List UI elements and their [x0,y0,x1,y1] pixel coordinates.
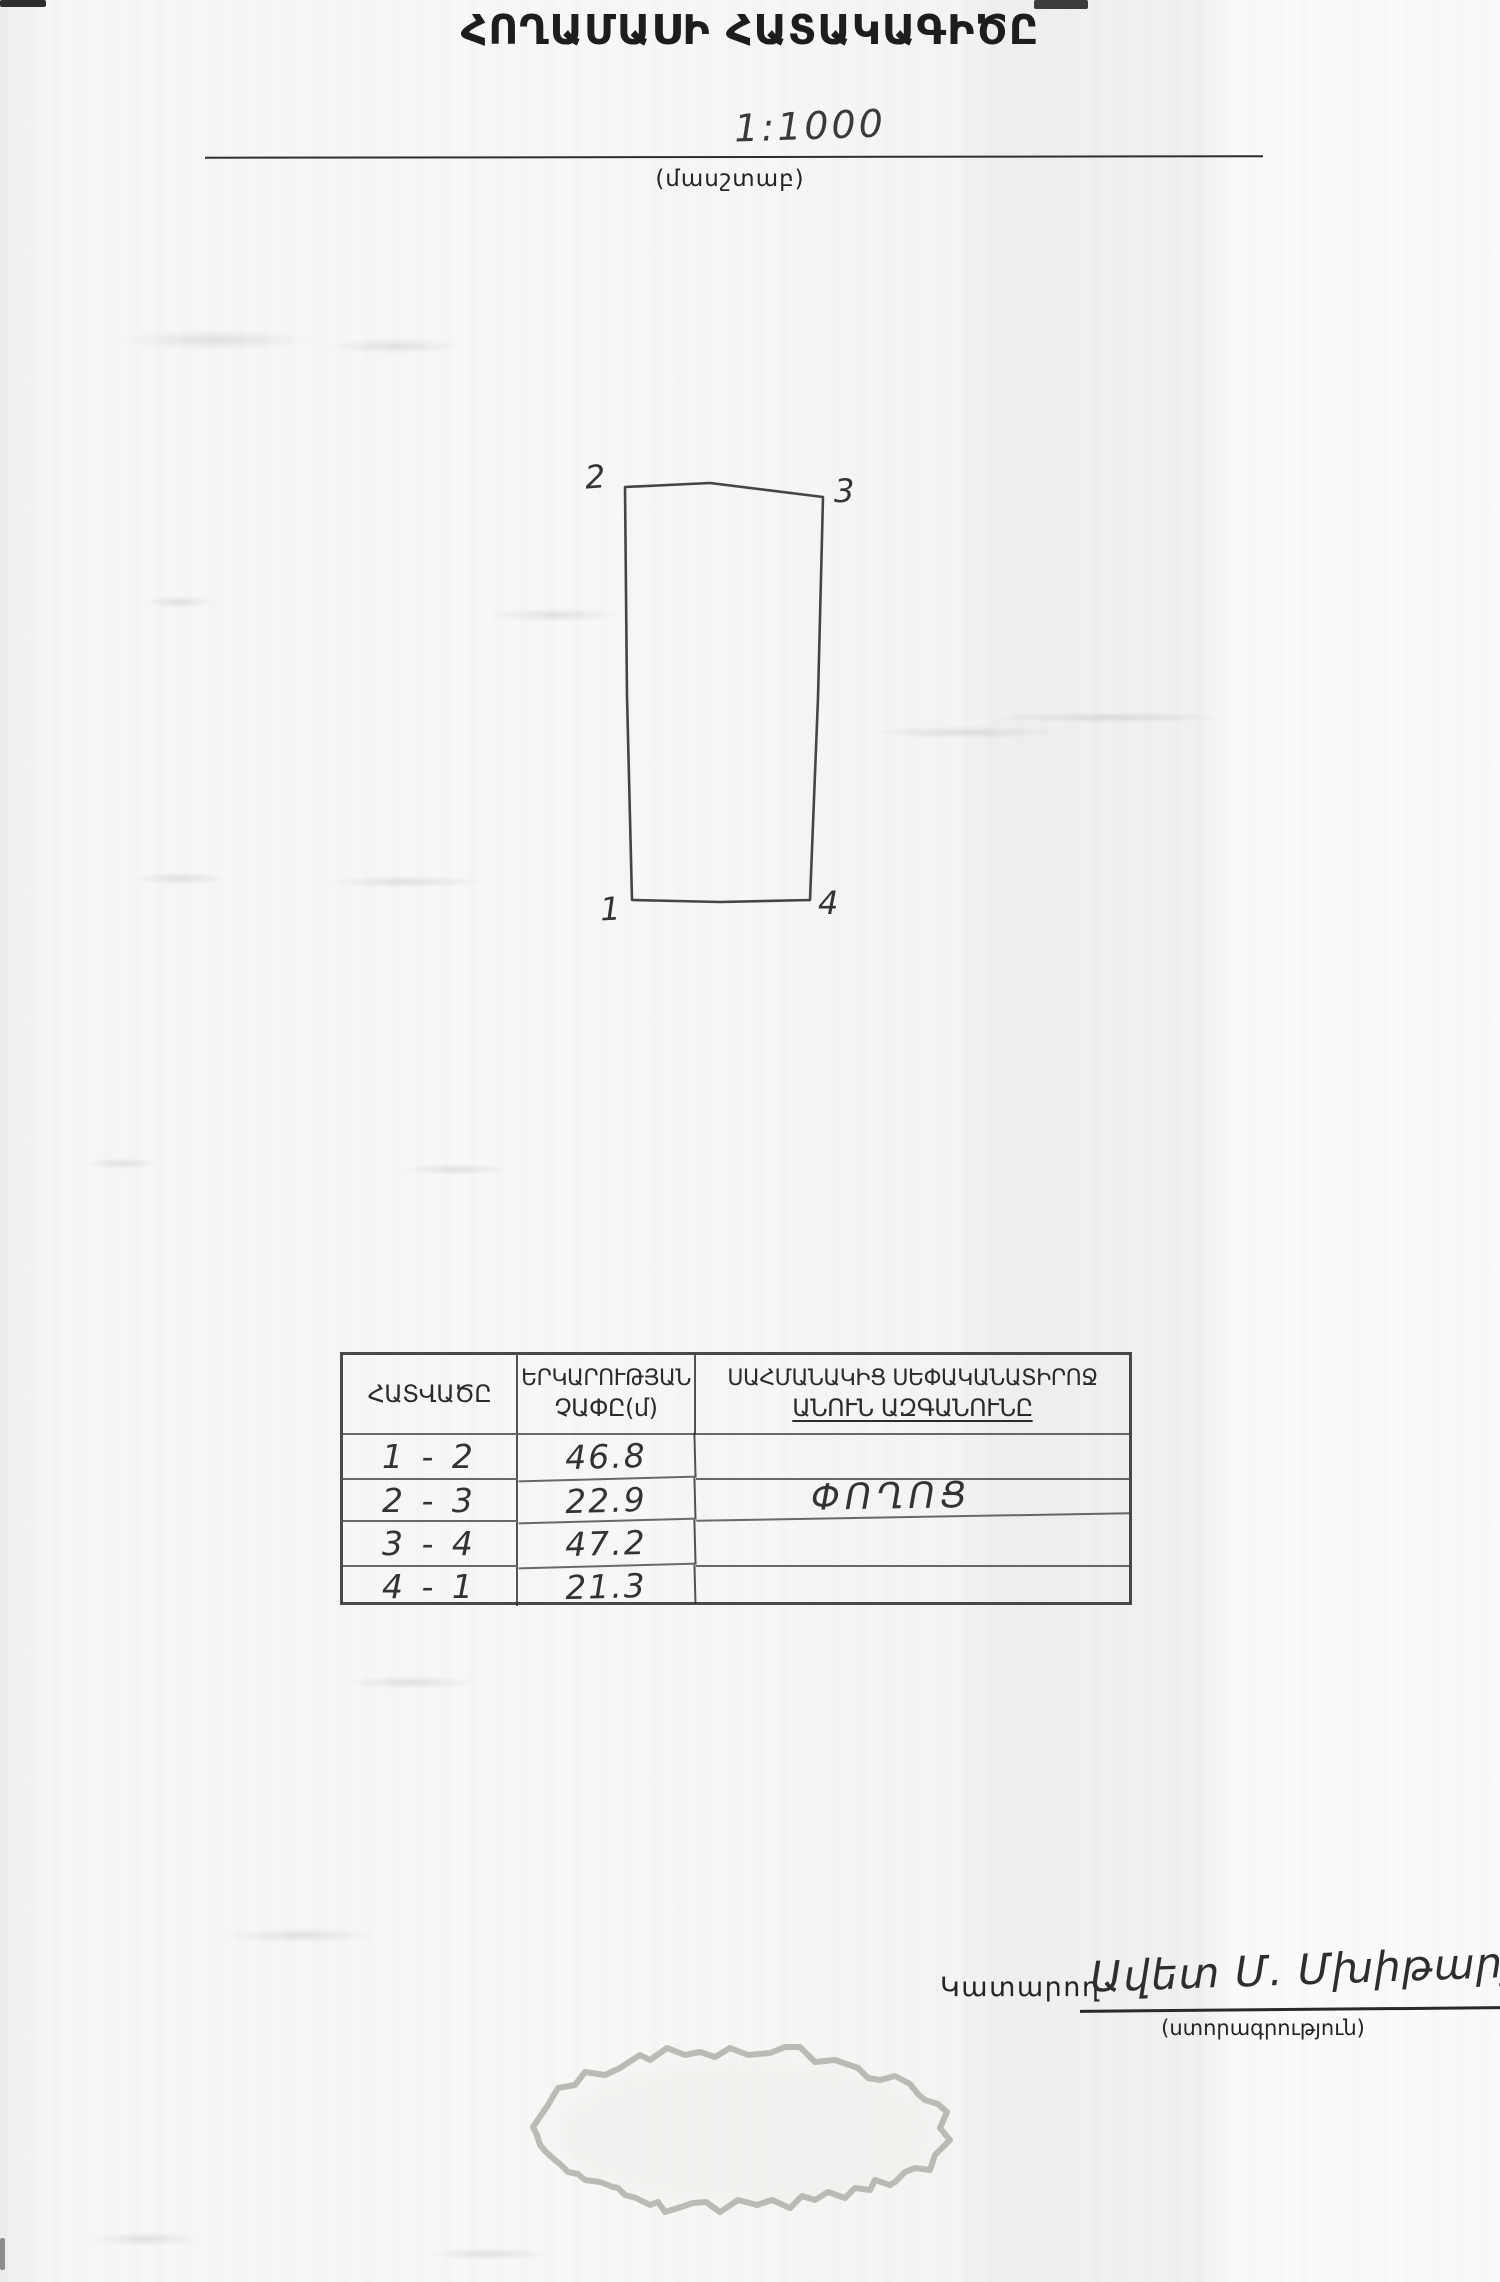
scale-rule-line [205,155,1263,158]
stamp-impression [510,2030,980,2230]
signature-caption: (ստորագրություն) [1138,2016,1388,2040]
scan-smudge [145,596,215,608]
scanned-document-page: ՀՈՂԱՄԱՍԻ ՀԱՏԱԿԱԳԻԾԸ 1:1000 (մասշտաբ) 2 3… [0,0,1500,2282]
plot-corner-label-1: 1 [599,889,621,928]
table-header-length-line1: ԵՐԿԱՐՈՒԹՅԱՆ [521,1365,691,1393]
signature-line [1080,2006,1500,2013]
table-header-length: ԵՐԿԱՐՈՒԹՅԱՆ ՉԱՓԸ(մ) [518,1355,696,1435]
scan-smudge [400,1164,510,1175]
scan-smudge [330,338,460,354]
scan-smudge [345,1676,475,1689]
plot-corner-label-4: 4 [818,884,838,922]
page-title: ՀՈՂԱՄԱՍԻ ՀԱՏԱԿԱԳԻԾԸ [0,6,1500,54]
scan-artifact [0,2238,5,2270]
table-cell-segment: 2 - 3 [343,1480,518,1522]
measurements-table: ՀԱՏՎԱԾԸ ԵՐԿԱՐՈՒԹՅԱՆ ՉԱՓԸ(մ) ՍԱՀՄԱՆԱԿԻՑ Ս… [340,1352,1132,1605]
table-cell-owner [696,1522,1129,1567]
plot-corner-label-2: 2 [584,457,607,496]
scan-smudge [870,726,1060,739]
scan-smudge [135,872,225,885]
table-cell-segment: 4 - 1 [343,1567,518,1606]
table-header-owner-line2: ԱՆՈՒՆ ԱԶԳԱՆՈՒՆԸ [792,1393,1032,1423]
scan-smudge [120,330,310,350]
scan-smudge [990,712,1230,723]
table-cell-length: 22.9 [517,1478,696,1525]
table-header-owner-line1: ՍԱՀՄԱՆԱԿԻՑ ՍԵՓԱԿԱՆԱՏԻՐՈՋ [727,1365,1097,1393]
scale-value-handwritten: 1:1000 [699,100,920,152]
table-header-segment: ՀԱՏՎԱԾԸ [343,1355,518,1435]
table-header-segment-label: ՀԱՏՎԱԾԸ [368,1379,492,1409]
plot-corner-label-3: 3 [834,472,854,510]
scan-smudge [430,2248,550,2260]
scan-smudge [225,1928,375,1943]
executor-label: Կատարող [940,1972,1101,2003]
table-cell-owner: ՓՈՂՈՑ [696,1472,1130,1522]
plot-outline-drawing [570,450,890,960]
scan-smudge [90,2232,200,2246]
table-cell-segment: 1 - 2 [343,1435,518,1480]
table-header-length-line2: ՉԱՓԸ(մ) [555,1393,658,1423]
table-header-owner: ՍԱՀՄԱՆԱԿԻՑ ՍԵՓԱԿԱՆԱՏԻՐՈՋ ԱՆՈՒՆ ԱԶԳԱՆՈՒՆԸ [696,1355,1129,1435]
signature-handwritten: Ավետ Մ. Մխիթարյան [1089,1935,1500,2001]
table-cell-length: 21.3 [518,1565,697,1609]
table-cell-length: 47.2 [517,1520,696,1570]
table-cell-segment: 3 - 4 [343,1522,518,1567]
table-cell-length: 46.8 [517,1433,696,1483]
scale-caption: (մասշտաբ) [640,166,820,192]
scan-smudge [88,1158,158,1169]
table-cell-owner [696,1567,1129,1606]
scan-smudge [325,876,485,888]
